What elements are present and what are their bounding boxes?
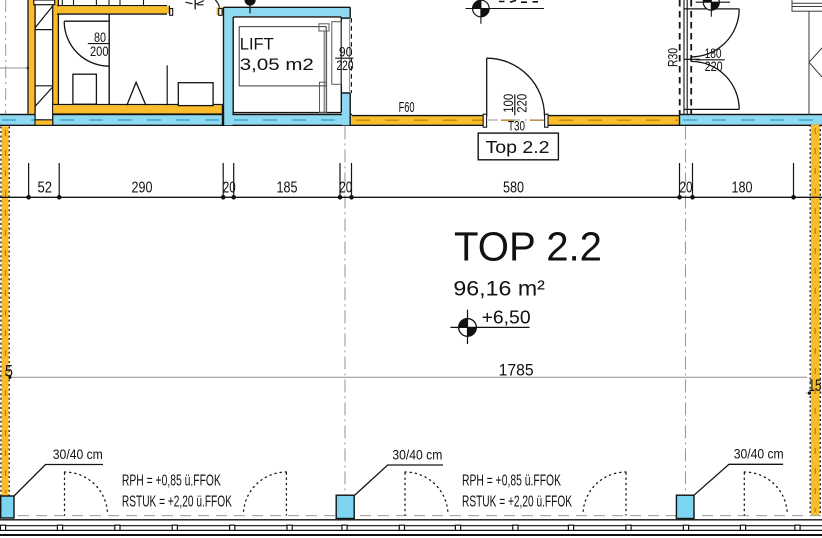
svg-text:T30: T30	[508, 119, 525, 134]
svg-text:30/40 cm: 30/40 cm	[53, 447, 103, 462]
svg-text:20: 20	[339, 180, 352, 197]
svg-text:5: 5	[5, 362, 13, 381]
svg-text:+6,50: +6,50	[482, 306, 531, 327]
svg-text:3,05 m2: 3,05 m2	[240, 56, 314, 74]
svg-text:TOP 2.2: TOP 2.2	[454, 223, 602, 269]
svg-text:30/40 cm: 30/40 cm	[392, 448, 442, 463]
svg-text:R30: R30	[666, 48, 681, 67]
svg-text:1785: 1785	[499, 361, 534, 380]
svg-text:30/40 cm: 30/40 cm	[734, 447, 784, 462]
svg-text:220: 220	[705, 59, 723, 74]
svg-text:180: 180	[732, 180, 753, 197]
svg-text:RPH = +0,85 ü.FFOK: RPH = +0,85 ü.FFOK	[462, 472, 562, 489]
svg-text:15: 15	[809, 376, 822, 395]
svg-text:290: 290	[132, 180, 153, 197]
svg-text:220: 220	[514, 94, 529, 113]
svg-text:580: 580	[503, 180, 524, 197]
svg-text:200: 200	[90, 44, 109, 59]
svg-text:F60: F60	[399, 99, 415, 116]
svg-text:Top 2.2: Top 2.2	[486, 137, 550, 157]
svg-text:RSTUK = +2,20 ü.FFOK: RSTUK = +2,20 ü.FFOK	[462, 494, 573, 511]
svg-text:RPH = +0,85 ü.FFOK: RPH = +0,85 ü.FFOK	[122, 472, 222, 489]
svg-text:52: 52	[38, 180, 53, 197]
svg-text:220: 220	[337, 58, 354, 73]
svg-text:185: 185	[277, 180, 298, 197]
svg-text:20: 20	[680, 180, 693, 197]
svg-text:RSTUK = +2,20 ü.FFOK: RSTUK = +2,20 ü.FFOK	[122, 494, 233, 511]
svg-text:20: 20	[223, 180, 236, 197]
svg-text:96,16 m²: 96,16 m²	[453, 277, 545, 301]
svg-text:LIFT: LIFT	[240, 35, 274, 53]
